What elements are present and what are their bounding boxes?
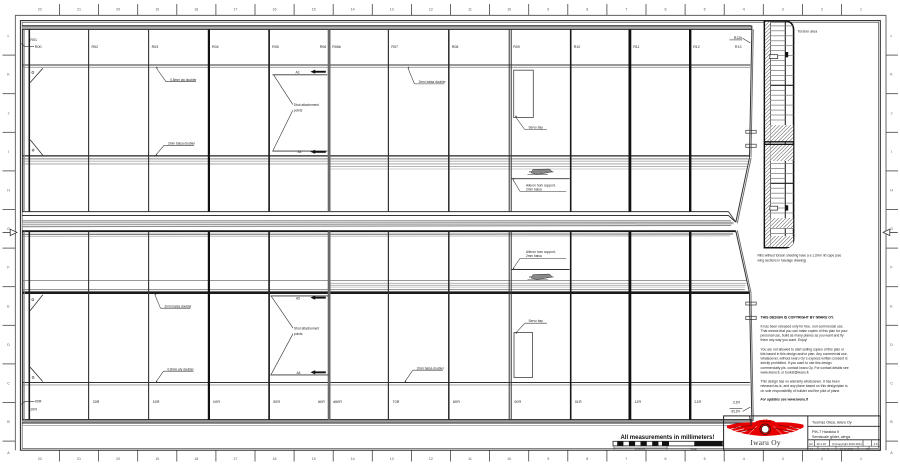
svg-text:commercially pls. contact Iwar: commercially pls. contact Iwaru Oy. For …	[761, 366, 849, 370]
svg-text:You are not allowed to start s: You are not allowed to start selling cop…	[761, 347, 845, 351]
svg-text:20: 20	[116, 8, 120, 12]
svg-text:Aileron horn support,: Aileron horn support,	[526, 250, 556, 254]
svg-text:3.1.11: 3.1.11	[822, 447, 830, 451]
svg-text:20: 20	[116, 457, 120, 461]
svg-text:R04: R04	[212, 45, 219, 49]
svg-text:Torsion area: Torsion area	[798, 30, 818, 34]
svg-text:13: 13	[390, 457, 394, 461]
svg-text:7: 7	[625, 457, 627, 461]
svg-text:R13: R13	[735, 45, 742, 49]
svg-text:points: points	[294, 332, 303, 336]
svg-text:6: 6	[665, 8, 667, 12]
svg-text:A2: A2	[809, 442, 813, 446]
svg-text:points: points	[294, 108, 303, 112]
svg-text:5: 5	[704, 457, 706, 461]
svg-text:A6: A6	[297, 371, 301, 375]
svg-text:R08: R08	[452, 45, 459, 49]
svg-text:E: E	[890, 304, 893, 308]
svg-text:That means that you can make c: That means that you can make copies of t…	[761, 329, 849, 333]
svg-text:4: 4	[743, 8, 745, 12]
svg-text:R00: R00	[35, 45, 42, 49]
svg-text:9: 9	[547, 8, 549, 12]
svg-text:1:6: 1:6	[874, 442, 879, 446]
svg-text:whatsoever, without Iwaru Oy´s: whatsoever, without Iwaru Oy´s express w…	[761, 357, 848, 361]
svg-text:6: 6	[665, 457, 667, 461]
svg-text:R05: R05	[273, 400, 280, 404]
svg-text:THIS DESIGN IS COPYRIGHT BY IW: THIS DESIGN IS COPYRIGHT BY IWARU OY.	[761, 316, 835, 320]
svg-text:R13: R13	[733, 401, 740, 405]
svg-text:17: 17	[233, 457, 237, 461]
svg-text:15: 15	[312, 457, 316, 461]
svg-text:Semiscale glider, wings: Semiscale glider, wings	[812, 435, 850, 439]
svg-text:19: 19	[155, 8, 159, 12]
svg-text:1: 1	[860, 457, 862, 461]
svg-text:R10: R10	[575, 400, 582, 404]
svg-text:C: C	[7, 382, 10, 386]
svg-text:14: 14	[351, 457, 355, 461]
svg-text:Strut attachement: Strut attachement	[294, 103, 319, 107]
svg-text:10.1.16: 10.1.16	[817, 442, 827, 446]
svg-text:R02: R02	[92, 45, 99, 49]
svg-text:1: 1	[860, 8, 862, 12]
svg-text:R02: R02	[93, 400, 100, 404]
svg-text:R05: R05	[272, 45, 279, 49]
svg-text:It has been released only for: It has been released only for free, non-…	[761, 324, 844, 328]
svg-text:22: 22	[38, 8, 42, 12]
svg-text:2mm balsa: 2mm balsa	[526, 254, 542, 258]
svg-text:(C)Copyright 2010-2011: (C)Copyright 2010-2011	[832, 442, 862, 446]
svg-text:2mm balsa doubler: 2mm balsa doubler	[417, 366, 445, 370]
svg-text:For updates see www.iwaru.fi: For updates see www.iwaru.fi	[761, 398, 809, 402]
svg-text:Scale: Scale	[690, 447, 697, 451]
svg-text:0.8mm ply doubler: 0.8mm ply doubler	[170, 78, 197, 82]
svg-text:R07: R07	[391, 45, 398, 49]
svg-text:www.iwaru.fi, or tuokst@iwaru.: www.iwaru.fi, or tuokst@iwaru.fi.	[761, 370, 810, 374]
svg-text:16: 16	[273, 8, 277, 12]
svg-text:H: H	[7, 189, 10, 193]
svg-text:kits based in this design and/: kits based in this design and/or plan. A…	[761, 352, 848, 356]
svg-text:A: A	[890, 451, 893, 455]
svg-text:2mm balsa doubler: 2mm balsa doubler	[165, 304, 193, 308]
svg-text:15: 15	[312, 8, 316, 12]
svg-text:J: J	[891, 111, 893, 115]
svg-text:R10: R10	[574, 45, 581, 49]
svg-text:Ribs without torsion sheeting: Ribs without torsion sheeting have a a 1…	[758, 253, 842, 257]
svg-text:R12: R12	[694, 400, 701, 404]
svg-text:21: 21	[77, 8, 81, 12]
svg-text:G: G	[890, 227, 893, 231]
svg-text:12: 12	[429, 8, 433, 12]
svg-text:R11: R11	[633, 45, 639, 49]
svg-text:Aileron horn support,: Aileron horn support,	[526, 183, 556, 187]
svg-text:9: 9	[547, 457, 549, 461]
svg-text:18: 18	[194, 8, 198, 12]
svg-text:Servo bay: Servo bay	[529, 126, 544, 130]
svg-text:11: 11	[468, 457, 472, 461]
svg-text:R09: R09	[513, 45, 520, 49]
svg-text:wing sections in fuselage draw: wing sections in fuselage drawing).	[758, 259, 808, 263]
svg-text:R12: R12	[693, 45, 700, 49]
svg-text:2mm balsa doubler: 2mm balsa doubler	[419, 80, 447, 84]
svg-text:strictly prohibited. If you wa: strictly prohibited. If you want to use …	[761, 361, 832, 365]
svg-text:2: 2	[821, 8, 823, 12]
svg-text:12: 12	[429, 457, 433, 461]
svg-text:R00: R00	[35, 400, 42, 404]
svg-text:R12b: R12b	[731, 409, 740, 413]
svg-text:0.8mm ply doubler: 0.8mm ply doubler	[168, 367, 195, 371]
svg-text:13: 13	[390, 8, 394, 12]
svg-text:D: D	[890, 343, 893, 347]
svg-text:14: 14	[351, 8, 355, 12]
svg-text:Servo bay: Servo bay	[529, 319, 544, 323]
svg-text:R03: R03	[153, 400, 160, 404]
svg-text:L: L	[8, 34, 10, 38]
svg-text:R09: R09	[514, 400, 521, 404]
svg-text:3: 3	[782, 8, 784, 12]
svg-text:B: B	[7, 420, 10, 424]
svg-text:personal use, build as many pl: personal use, build as many planes as yo…	[761, 334, 844, 338]
svg-text:7: 7	[625, 8, 627, 12]
svg-text:R01: R01	[30, 38, 37, 42]
svg-text:1:1: 1:1	[810, 447, 814, 451]
svg-text:R07: R07	[393, 400, 400, 404]
svg-text:L: L	[891, 34, 893, 38]
svg-text:B: B	[890, 420, 893, 424]
svg-text:released as-is, and any plane: released as-is, and any plane based on t…	[761, 384, 848, 388]
svg-text:21: 21	[77, 457, 81, 461]
svg-text:A5: A5	[296, 297, 300, 301]
svg-text:E: E	[7, 304, 10, 308]
svg-text:D: D	[7, 343, 10, 347]
svg-text:19: 19	[155, 457, 159, 461]
svg-text:K: K	[890, 73, 893, 77]
svg-text:A4: A4	[298, 150, 302, 154]
svg-text:K: K	[7, 73, 10, 77]
svg-text:J: J	[8, 111, 10, 115]
svg-text:31.12.2010: 31.12.2010	[840, 447, 854, 451]
svg-text:R01: R01	[30, 408, 37, 412]
svg-text:R06b: R06b	[333, 400, 342, 404]
svg-text:them any way you want. Enjoy!: them any way you want. Enjoy!	[761, 338, 808, 342]
svg-text:C: C	[890, 382, 893, 386]
svg-text:2mm balsa doubler: 2mm balsa doubler	[168, 141, 196, 145]
svg-text:I: I	[891, 150, 892, 154]
svg-text:R04: R04	[213, 400, 220, 404]
svg-text:11: 11	[468, 8, 472, 12]
svg-text:10: 10	[507, 8, 511, 12]
svg-text:H: H	[890, 189, 893, 193]
svg-text:F: F	[890, 266, 893, 270]
svg-text:on sole responsibility of buil: on sole responsibility of builder and th…	[761, 389, 841, 393]
svg-text:R06b: R06b	[332, 45, 341, 49]
svg-text:This design has no warranty wh: This design has no warranty whatsoever. …	[761, 380, 840, 384]
svg-text:18: 18	[194, 457, 198, 461]
svg-text:4: 4	[743, 457, 745, 461]
svg-text:R12b: R12b	[734, 36, 743, 40]
svg-text:A3: A3	[296, 70, 300, 74]
svg-text:8: 8	[586, 457, 588, 461]
svg-text:16: 16	[273, 457, 277, 461]
svg-text:G: G	[7, 227, 10, 231]
svg-text:Strut attachement: Strut attachement	[294, 327, 319, 331]
svg-text:R06: R06	[320, 45, 327, 49]
svg-text:PIK-7 Harakka II: PIK-7 Harakka II	[812, 430, 839, 434]
svg-text:Tuomas Oksa, Iwaru Oy: Tuomas Oksa, Iwaru Oy	[812, 420, 852, 424]
svg-text:R03: R03	[152, 45, 159, 49]
svg-text:2: 2	[821, 457, 823, 461]
svg-text:R11: R11	[635, 400, 641, 404]
svg-text:22: 22	[38, 457, 42, 461]
svg-text:8: 8	[586, 8, 588, 12]
svg-text:F: F	[7, 266, 10, 270]
svg-text:17: 17	[233, 8, 237, 12]
svg-text:All measurements in millimeter: All measurements in millimeters!	[620, 435, 714, 441]
svg-text:5: 5	[704, 8, 706, 12]
svg-text:I: I	[8, 150, 9, 154]
svg-text:2mm balsa: 2mm balsa	[526, 188, 542, 192]
svg-text:A: A	[7, 451, 10, 455]
svg-text:R06: R06	[318, 400, 325, 404]
svg-text:Iwaru Oy: Iwaru Oy	[750, 438, 781, 447]
svg-text:R08: R08	[453, 400, 460, 404]
svg-text:10: 10	[507, 457, 511, 461]
svg-text:3: 3	[782, 457, 784, 461]
svg-text:+0.50mm: +0.50mm	[635, 448, 646, 451]
